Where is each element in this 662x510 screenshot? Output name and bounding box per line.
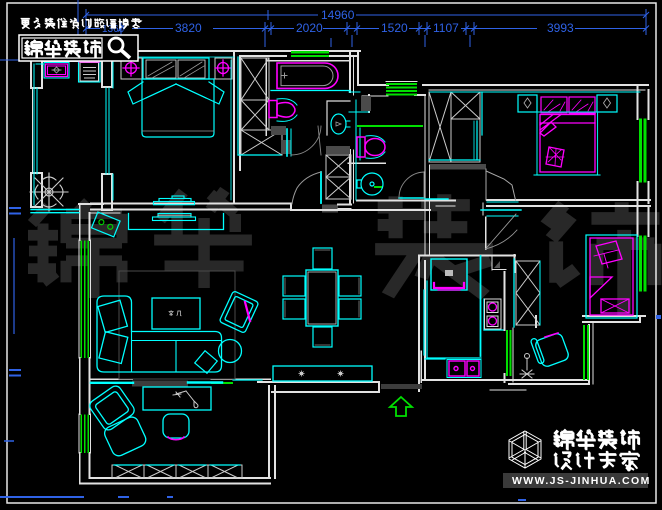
svg-text:1520: 1520 [381, 21, 408, 35]
svg-text:3820: 3820 [175, 21, 202, 35]
svg-text:14960: 14960 [321, 8, 355, 22]
svg-text:WWW.JS-JINHUA.COM: WWW.JS-JINHUA.COM [512, 475, 651, 487]
svg-text:3993: 3993 [547, 21, 574, 35]
svg-text:1107: 1107 [433, 21, 459, 35]
svg-text:2020: 2020 [296, 21, 323, 35]
